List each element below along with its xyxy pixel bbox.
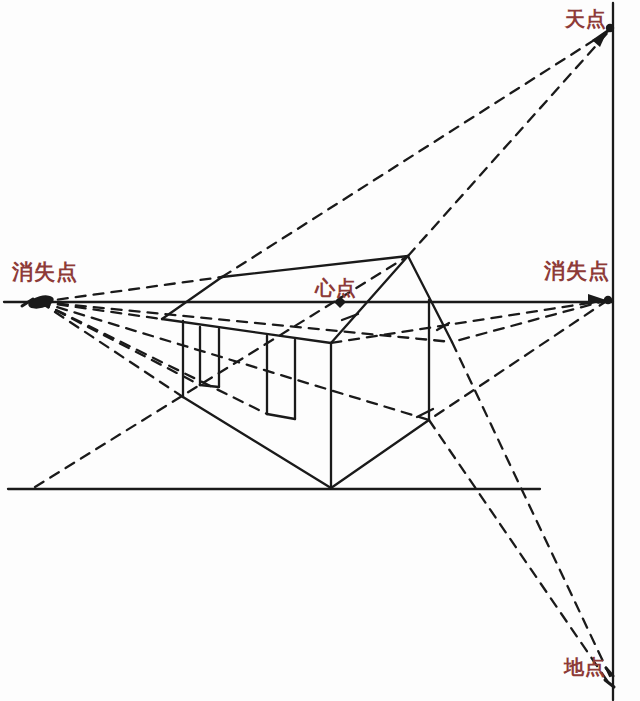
perspective-diagram: 消失点消失点心点天点地点 <box>0 0 640 701</box>
vanishing-point-left-label: 消失点 <box>11 260 78 284</box>
sky-point-label: 天点 <box>564 8 607 30</box>
vanishing-point-right-label: 消失点 <box>543 259 610 283</box>
ground-point-label: 地点 <box>563 656 606 678</box>
diagram-svg: 消失点消失点心点天点地点 <box>0 0 640 701</box>
center-point-label: 心点 <box>314 277 357 299</box>
